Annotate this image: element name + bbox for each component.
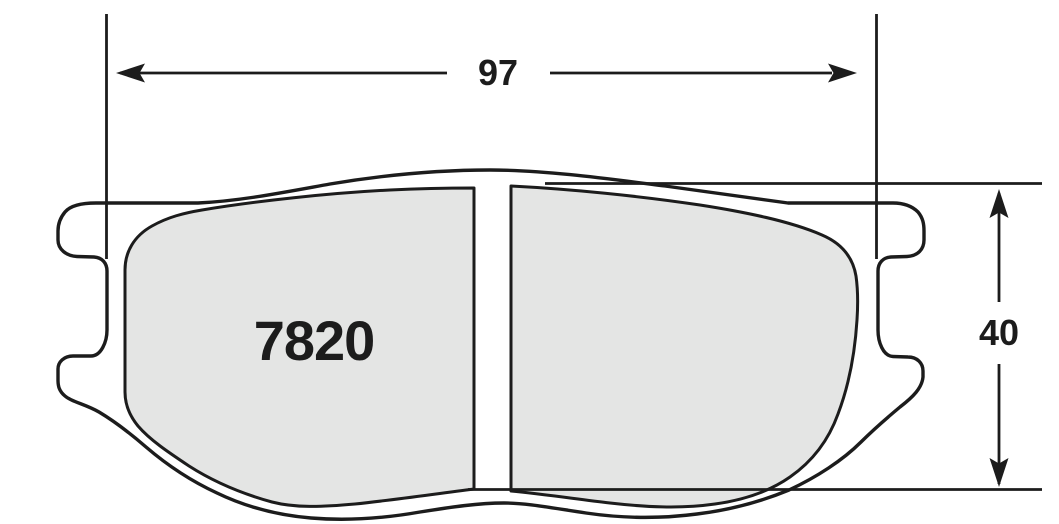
part-number-label: 7820 — [254, 309, 375, 372]
friction-pad-right — [511, 186, 858, 507]
width-dimension-label: 97 — [478, 52, 518, 93]
drawing-canvas: 97 40 7820 — [0, 0, 1059, 524]
brake-pad-technical-drawing: 97 40 7820 — [0, 0, 1059, 524]
height-dimension-label: 40 — [979, 312, 1019, 353]
width-arrowhead-right-icon — [828, 64, 857, 83]
